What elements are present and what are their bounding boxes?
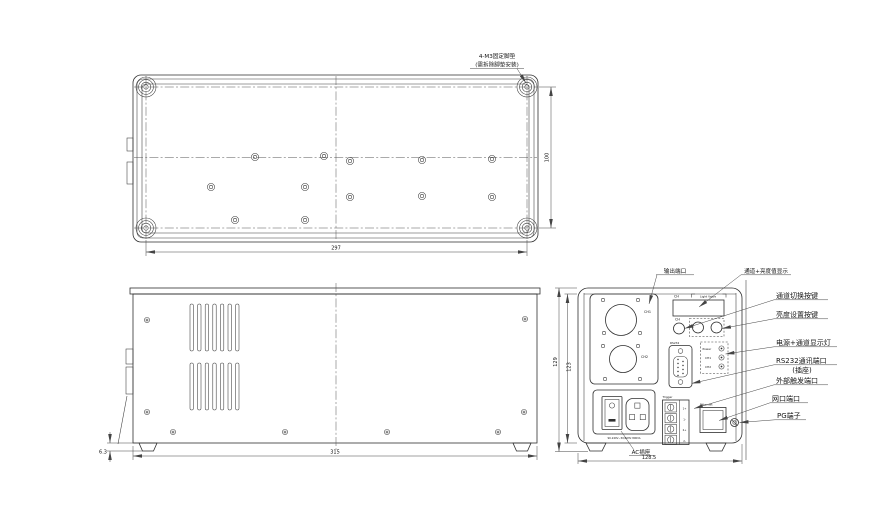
callout-power-channel-leds-label: 电源+通道显示灯 — [776, 338, 831, 347]
indicator-leds: Power CH1 CH2 — [701, 342, 729, 374]
iec-inlet — [626, 399, 649, 431]
power-switch — [602, 397, 622, 430]
rear-view-dimensions: 129 123 128.5 — [553, 288, 742, 464]
channel-switch-button — [674, 323, 685, 334]
ac-inlet-module: 90-240V~50/60Hz 800VA — [593, 390, 655, 440]
ac-rating-marking: 90-240V~50/60Hz 800VA — [607, 436, 640, 440]
side-tab — [127, 138, 133, 151]
channel-brightness-display: CH Light Value — [673, 294, 726, 316]
rs232-connector: RS232 — [669, 341, 692, 388]
vent-slots — [190, 304, 239, 410]
callout-ac-socket: AC插座 — [621, 431, 654, 456]
callout-rs232-sub-label: (插座) — [792, 366, 812, 375]
callout-channel-switch-label: 通道切换按键 — [776, 291, 818, 300]
top-view-dimensions: 297 100 — [146, 87, 556, 256]
callout-ext-trigger: 外部触发端口 — [694, 376, 828, 409]
rs232-label: RS232 — [670, 341, 680, 345]
dim-rear-height-inner: 123 — [567, 362, 573, 372]
top-view: 4-M3固定脚垫 (需拆除脚垫安装) 297 100 — [127, 52, 556, 256]
side-view: 315 6.3 — [99, 283, 540, 462]
brightness-up-button — [693, 322, 704, 333]
side-tab — [127, 162, 133, 184]
callout-output-port-label: 输出端口 — [664, 267, 686, 275]
trigger-pin-1n: 1- — [683, 417, 686, 421]
display-ch-label: CH — [674, 295, 679, 299]
foot — [586, 443, 606, 451]
dim-side-width: 315 — [330, 450, 340, 456]
callout-rs232-port-label: RS232通讯端口 — [776, 356, 827, 365]
switch-off-symbol — [609, 403, 614, 408]
trigger-pin-2p: 2+ — [683, 428, 687, 432]
callout-pg-terminal-label: PG端子 — [777, 411, 801, 420]
trigger-pin-2n: 2- — [683, 439, 686, 443]
screw-holes — [207, 152, 495, 223]
trigger-terminal-block: Trigger 1+ 1- 2+ 2- — [662, 395, 690, 445]
button-ch-label: CH — [675, 318, 680, 322]
drawing-canvas: 4-M3固定脚垫 (需拆除脚垫安装) 297 100 — [0, 0, 888, 522]
front-buttons: CH — [674, 318, 725, 337]
trigger-label: Trigger — [662, 395, 674, 399]
callout-brightness-set-label: 亮度设置按键 — [776, 310, 818, 319]
output-connector-panel: CH1 CH2 — [590, 294, 658, 384]
foot-note-line1: 4-M3固定脚垫 — [479, 52, 516, 60]
side-connector-bump — [126, 349, 133, 364]
side-connector-bump — [126, 367, 133, 394]
dim-rear-height-outer: 129 — [553, 357, 559, 367]
brightness-down-button — [711, 322, 722, 333]
foot — [706, 443, 726, 451]
technical-drawing-page: 4-M3固定脚垫 (需拆除脚垫安装) 297 100 — [0, 0, 888, 522]
trigger-pin-1p: 1+ — [683, 407, 687, 411]
callout-brightness-set: 亮度设置按键 — [722, 310, 828, 329]
ch1-label: CH1 — [644, 310, 651, 314]
callout-display-label: 通道+亮度值显示 — [744, 267, 788, 275]
pg-terminal — [731, 419, 739, 427]
switch-on-symbol — [609, 419, 616, 422]
foot-note-line2: (需拆除脚垫安装) — [475, 61, 519, 69]
ac-socket-label: AC插座 — [632, 448, 651, 456]
display-value-label: Light Value — [700, 294, 716, 298]
callout-ext-trigger-label: 外部触发端口 — [776, 376, 818, 385]
foot-annotation: 4-M3固定脚垫 (需拆除脚垫安装) — [470, 52, 526, 83]
side-view-dimensions: 315 6.3 — [99, 432, 537, 462]
foot — [139, 443, 157, 451]
dim-foot-height: 6.3 — [99, 450, 107, 456]
led-ch1-label: CH1 — [705, 356, 711, 360]
callout-display: 通道+亮度值显示 — [699, 267, 791, 307]
led-power-label: Power — [703, 347, 713, 351]
output-connector-ch2 — [610, 346, 637, 373]
led-ch2-label: CH2 — [705, 365, 711, 369]
callout-lan-port-label: 网口端口 — [772, 394, 800, 403]
ch2-label: CH2 — [641, 355, 648, 359]
foot — [513, 443, 531, 451]
callout-pg-terminal: PG端子 — [740, 411, 807, 423]
ethernet-port: Ethernet — [700, 403, 726, 433]
callout-output-port: 输出端口 — [649, 267, 694, 304]
rear-view: CH1 CH2 CH Light Value CH RS232 — [553, 280, 746, 464]
output-connector-ch1 — [606, 305, 637, 336]
dim-top-height: 100 — [545, 153, 551, 163]
dim-top-width: 297 — [331, 246, 341, 252]
